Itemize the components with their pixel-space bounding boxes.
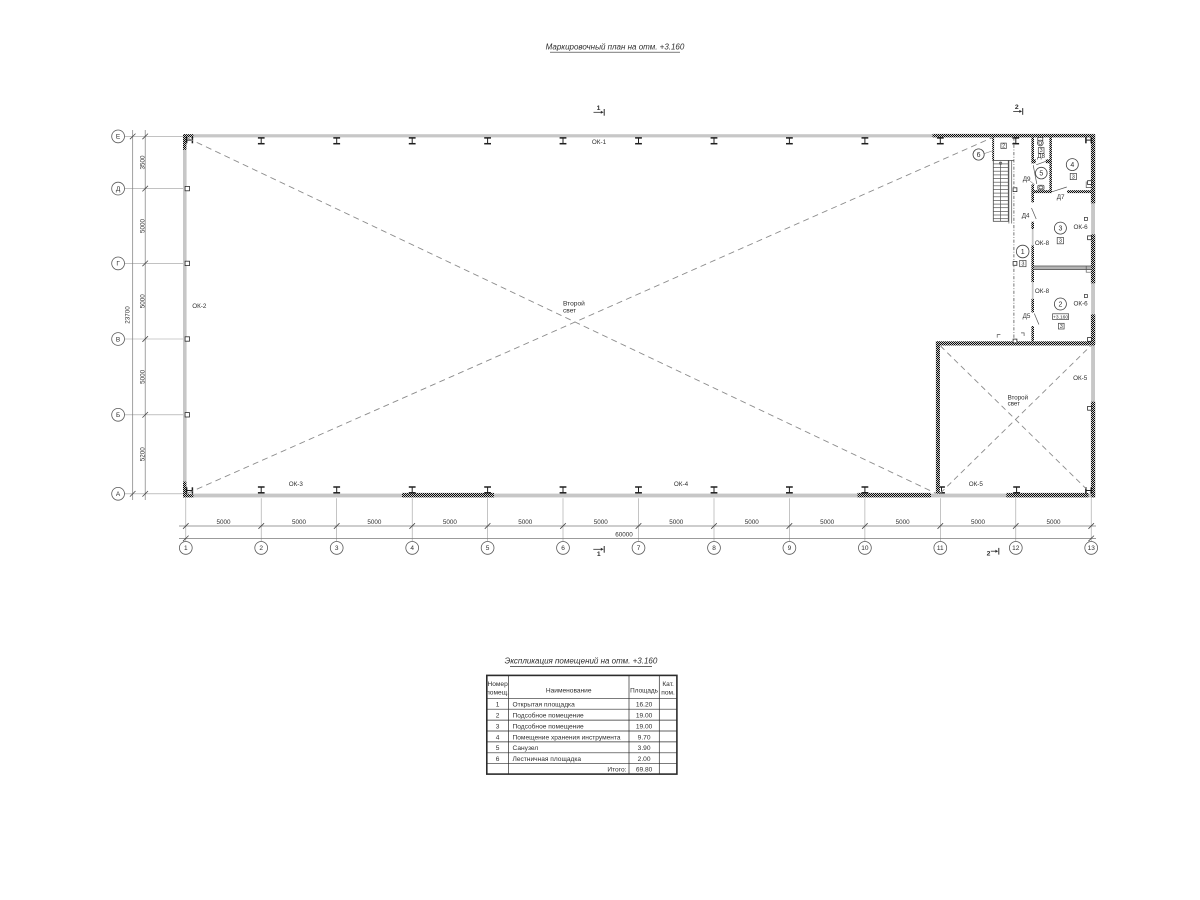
svg-text:2: 2	[496, 713, 500, 720]
svg-text:1: 1	[597, 105, 601, 112]
svg-text:2: 2	[1058, 302, 1062, 309]
svg-text:19.00: 19.00	[636, 723, 653, 730]
svg-text:Д8: Д8	[1037, 153, 1045, 160]
svg-text:5200: 5200	[139, 447, 146, 462]
svg-text:помещ.: помещ.	[486, 690, 509, 697]
svg-text:свет: свет	[563, 308, 576, 315]
svg-text:Лестничная площадка: Лестничная площадка	[513, 756, 582, 763]
svg-text:1: 1	[496, 702, 500, 709]
svg-text:7: 7	[637, 545, 641, 552]
svg-text:1: 1	[1021, 249, 1025, 256]
svg-text:2: 2	[259, 545, 263, 552]
svg-text:Д: Д	[116, 186, 121, 193]
svg-text:19.00: 19.00	[636, 713, 653, 720]
svg-text:пом.: пом.	[661, 690, 675, 697]
svg-text:Д7: Д7	[1057, 194, 1065, 201]
svg-text:5000: 5000	[216, 519, 231, 526]
svg-text:ОК-6: ОК-6	[1074, 301, 1089, 308]
svg-text:4: 4	[496, 734, 500, 741]
svg-text:ОК-6: ОК-6	[1074, 224, 1089, 231]
svg-text:Д9: Д9	[1023, 176, 1031, 183]
svg-text:ОК-4: ОК-4	[674, 481, 689, 488]
svg-text:Кат.: Кат.	[662, 681, 674, 688]
svg-text:2: 2	[1002, 143, 1005, 149]
svg-text:ОК-8: ОК-8	[1035, 240, 1050, 247]
svg-text:Г: Г	[116, 261, 120, 268]
svg-text:свет: свет	[1008, 400, 1021, 407]
svg-text:5000: 5000	[745, 519, 760, 526]
svg-text:5: 5	[486, 545, 490, 552]
svg-text:ОК-5: ОК-5	[969, 481, 984, 488]
svg-text:8: 8	[712, 545, 716, 552]
svg-text:В: В	[116, 336, 120, 343]
svg-text:5000: 5000	[292, 519, 307, 526]
svg-text:Итого:: Итого:	[607, 767, 626, 774]
svg-text:5000: 5000	[820, 519, 835, 526]
svg-text:5000: 5000	[594, 519, 609, 526]
svg-text:2: 2	[1015, 104, 1019, 111]
svg-text:Экспликация помещений на отм.: Экспликация помещений на отм. +3.160	[505, 657, 658, 666]
svg-text:Открытая площадка: Открытая площадка	[513, 702, 576, 709]
svg-text:5000: 5000	[139, 294, 146, 309]
svg-text:3500: 3500	[139, 155, 146, 170]
svg-text:Помещение хранения инструмента: Помещение хранения инструмента	[513, 734, 621, 741]
svg-text:60000: 60000	[615, 532, 633, 539]
svg-text:3: 3	[1021, 262, 1024, 268]
svg-text:Наименование: Наименование	[546, 688, 592, 695]
svg-text:ОК-1: ОК-1	[592, 139, 607, 146]
svg-text:+3.160: +3.160	[1053, 314, 1068, 320]
svg-text:12: 12	[1012, 545, 1020, 552]
svg-text:5000: 5000	[443, 519, 458, 526]
svg-text:Подсобное помещение: Подсобное помещение	[513, 722, 585, 730]
svg-text:Д5: Д5	[1023, 313, 1031, 320]
svg-text:5000: 5000	[367, 519, 382, 526]
svg-text:ОК-2: ОК-2	[192, 303, 207, 310]
svg-text:3: 3	[335, 545, 339, 552]
svg-text:69.80: 69.80	[636, 767, 653, 774]
svg-text:ОК-5: ОК-5	[1073, 375, 1088, 382]
svg-text:9.70: 9.70	[638, 734, 651, 741]
svg-text:3: 3	[1058, 226, 1062, 233]
svg-text:3: 3	[1072, 175, 1075, 181]
svg-text:5: 5	[1039, 171, 1043, 178]
svg-text:13: 13	[1088, 545, 1096, 552]
svg-text:3: 3	[496, 723, 500, 730]
svg-text:2: 2	[987, 550, 991, 557]
svg-text:Маркировочный план на отм. +3.: Маркировочный план на отм. +3.160	[546, 43, 685, 52]
svg-text:5000: 5000	[139, 219, 146, 234]
svg-text:Д4: Д4	[1022, 213, 1030, 220]
svg-text:6: 6	[496, 756, 500, 763]
svg-text:11: 11	[937, 545, 944, 552]
svg-text:3: 3	[1060, 324, 1063, 330]
svg-text:5000: 5000	[971, 519, 986, 526]
svg-text:9: 9	[788, 545, 792, 552]
svg-text:5000: 5000	[139, 369, 146, 384]
svg-text:ОК-8: ОК-8	[1035, 288, 1050, 295]
svg-text:Б: Б	[116, 412, 120, 419]
svg-text:ОК-3: ОК-3	[289, 481, 304, 488]
svg-text:5000: 5000	[896, 519, 911, 526]
svg-text:5: 5	[496, 745, 500, 752]
svg-text:Е: Е	[116, 134, 121, 141]
svg-text:Подсобное помещение: Подсобное помещение	[513, 712, 585, 720]
svg-text:3.90: 3.90	[638, 745, 651, 752]
svg-text:1: 1	[597, 551, 601, 558]
svg-text:10: 10	[861, 545, 869, 552]
svg-text:Второй: Второй	[563, 299, 585, 307]
svg-text:6: 6	[561, 545, 565, 552]
svg-text:16.20: 16.20	[636, 702, 653, 709]
svg-text:5000: 5000	[1046, 519, 1061, 526]
svg-text:23700: 23700	[124, 306, 131, 324]
svg-text:Площадь: Площадь	[630, 688, 658, 695]
svg-text:3: 3	[1059, 239, 1062, 245]
svg-text:2.00: 2.00	[638, 756, 651, 763]
svg-text:4: 4	[1070, 162, 1074, 169]
svg-text:А: А	[116, 491, 121, 498]
svg-text:Номер: Номер	[487, 681, 508, 688]
svg-text:4: 4	[410, 545, 414, 552]
svg-text:1: 1	[184, 545, 188, 552]
svg-text:5000: 5000	[518, 519, 533, 526]
svg-text:6: 6	[977, 152, 981, 159]
svg-text:5000: 5000	[669, 519, 684, 526]
svg-text:Санузел: Санузел	[513, 745, 539, 752]
